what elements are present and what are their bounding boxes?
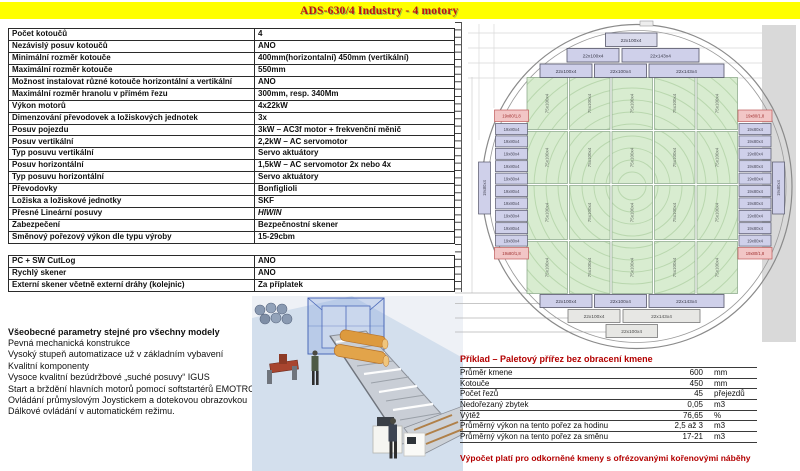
example-value: 76,65 bbox=[663, 410, 707, 421]
svg-text:19x80/1,8: 19x80/1,8 bbox=[502, 114, 521, 119]
table-row: PC + SW CutLogANO bbox=[9, 256, 455, 268]
svg-text:22x143x4: 22x143x4 bbox=[650, 53, 671, 59]
table-row: Směnový pořezový výkon dle typu výroby15… bbox=[9, 231, 455, 243]
svg-text:19x80x4: 19x80x4 bbox=[504, 226, 521, 231]
top-dimension-tag bbox=[640, 21, 653, 26]
svg-text:22x100x4: 22x100x4 bbox=[556, 299, 577, 305]
example-unit: mm bbox=[707, 378, 757, 389]
table-row: Posuv pojezdu3kW – AC3f motor + frekvenč… bbox=[9, 124, 455, 136]
ruler bbox=[459, 22, 462, 292]
spec-label: Možnost instalovat různé kotouče horizon… bbox=[9, 76, 255, 88]
example-table: Průměr kmene600mm Kotouče450mm Počet řez… bbox=[460, 367, 757, 443]
svg-text:22x100x4: 22x100x4 bbox=[583, 53, 604, 59]
spec-label: Ložiska a ložiskové jednotky bbox=[9, 196, 255, 208]
table-row: Nezávislý posuv kotoučůANO bbox=[9, 40, 455, 52]
svg-text:19x80x4: 19x80x4 bbox=[504, 139, 521, 144]
svg-text:19x80x4: 19x80x4 bbox=[504, 176, 521, 181]
table-row: Průměrný výkon na tento pořez za hodinu2… bbox=[460, 421, 757, 432]
svg-text:19x80x4: 19x80x4 bbox=[504, 164, 521, 169]
svg-text:22x100x4: 22x100x4 bbox=[621, 329, 642, 335]
svg-text:75x100x4: 75x100x4 bbox=[545, 202, 550, 222]
table-row: Ložiska a ložiskové jednotkySKF bbox=[9, 196, 455, 208]
spec-value: Za příplatek bbox=[255, 279, 455, 291]
example-unit: % bbox=[707, 410, 757, 421]
svg-text:19x80x4: 19x80x4 bbox=[747, 127, 764, 132]
cutting-diagram: 75x100x4 75x100x4 75x100x4 75x100x4 75x1… bbox=[450, 18, 800, 362]
svg-text:19x80x4: 19x80x4 bbox=[747, 152, 764, 157]
svg-text:19x80x4: 19x80x4 bbox=[482, 179, 487, 196]
spec-label: Typ posuvu vertikální bbox=[9, 148, 255, 160]
svg-text:22x100x4: 22x100x4 bbox=[621, 38, 642, 44]
svg-text:22x100x4: 22x100x4 bbox=[610, 299, 631, 305]
table-row: Externí skener včetně externí dráhy (kol… bbox=[9, 279, 455, 291]
svg-text:19x80x4: 19x80x4 bbox=[504, 238, 521, 243]
svg-text:75x100x4: 75x100x4 bbox=[587, 257, 592, 277]
spec-value: 550mm bbox=[255, 64, 455, 76]
spec-value: ANO bbox=[255, 76, 455, 88]
svg-text:75x100x4: 75x100x4 bbox=[545, 257, 550, 277]
spec-label: Minimální rozměr kotouče bbox=[9, 52, 255, 64]
example-label: Průměrný výkon na tento pořez za hodinu bbox=[460, 421, 663, 432]
example-label: Průměr kmene bbox=[460, 368, 663, 379]
table-row: Maximální rozměr hranolu v přímém řezu30… bbox=[9, 88, 455, 100]
table-row: Dimenzování převodovek a ložiskových jed… bbox=[9, 112, 455, 124]
spec-label: Zabezpečení bbox=[9, 220, 255, 232]
spec-label: Maximální rozměr kotouče bbox=[9, 64, 255, 76]
svg-text:75x100x4: 75x100x4 bbox=[545, 93, 550, 113]
svg-text:19x80x4: 19x80x4 bbox=[747, 214, 764, 219]
spec-label: Přesné Lineární posuvy bbox=[9, 208, 255, 220]
table-row: Nedořezaný zbytek0,05m3 bbox=[460, 400, 757, 411]
title-bar: ADS-630/4 Industry - 4 motory bbox=[0, 2, 800, 19]
svg-text:75x100x4: 75x100x4 bbox=[630, 147, 635, 167]
table-row: Typ posuvu vertikálníServo aktuátory bbox=[9, 148, 455, 160]
left-board-stack: 19x80/1,8 19x80x4 19x80x4 19x80x4 19x80x… bbox=[479, 110, 529, 259]
svg-text:75x100x4: 75x100x4 bbox=[630, 93, 635, 113]
spec-value: Servo aktuátory bbox=[255, 148, 455, 160]
svg-text:75x100x4: 75x100x4 bbox=[630, 257, 635, 277]
example-label: Nedořezaný zbytek bbox=[460, 400, 663, 411]
spec-sheet-page: ADS-630/4 Industry - 4 motory Počet koto… bbox=[0, 0, 800, 471]
spec-value: 15-29cbm bbox=[255, 231, 455, 243]
example-unit: přejezdů bbox=[707, 389, 757, 400]
table-row: Výtěž76,65% bbox=[460, 410, 757, 421]
spec-label: Počet kotoučů bbox=[9, 29, 255, 41]
svg-text:75x100x4: 75x100x4 bbox=[715, 93, 720, 113]
spec-value: Bezpečnostní skener bbox=[255, 220, 455, 232]
table-row: Minimální rozměr kotouče400mm(horizontal… bbox=[9, 52, 455, 64]
svg-text:75x100x4: 75x100x4 bbox=[672, 202, 677, 222]
spec-value: 400mm(horizontalní) 450mm (vertikální) bbox=[255, 52, 455, 64]
svg-text:75x100x4: 75x100x4 bbox=[672, 147, 677, 167]
top-boards: 22x100x4 22x100x4 22x143x4 22x100x4 22x1… bbox=[540, 33, 724, 78]
example-label: Výtěž bbox=[460, 410, 663, 421]
spec-label: PC + SW CutLog bbox=[9, 256, 255, 268]
svg-text:22x100x4: 22x100x4 bbox=[556, 69, 577, 75]
svg-text:75x100x4: 75x100x4 bbox=[715, 202, 720, 222]
spec-label: Posuv pojezdu bbox=[9, 124, 255, 136]
spec-value: 3kW – AC3f motor + frekvenční měnič bbox=[255, 124, 455, 136]
example-value: 45 bbox=[663, 389, 707, 400]
svg-text:75x100x4: 75x100x4 bbox=[587, 147, 592, 167]
spec-label: Převodovky bbox=[9, 184, 255, 196]
spec-value: Bonfiglioli bbox=[255, 184, 455, 196]
example-section: Příklad – Paletový přířez bez obracení k… bbox=[460, 353, 760, 463]
table-row: Průměrný výkon na tento pořez za směnu17… bbox=[460, 432, 757, 443]
table-row: Přesné Lineární posuvyHIWIN bbox=[9, 208, 455, 220]
svg-text:19x80x4: 19x80x4 bbox=[747, 238, 764, 243]
svg-text:22x143x4: 22x143x4 bbox=[676, 299, 697, 305]
svg-text:75x100x4: 75x100x4 bbox=[545, 147, 550, 167]
svg-text:19x80/1,8: 19x80/1,8 bbox=[502, 251, 521, 256]
spec-label: Typ posuvu horizontální bbox=[9, 172, 255, 184]
svg-text:19x80/1,8: 19x80/1,8 bbox=[746, 114, 765, 119]
example-value: 450 bbox=[663, 378, 707, 389]
spec-label: Směnový pořezový výkon dle typu výroby bbox=[9, 231, 255, 243]
example-value: 0,05 bbox=[663, 400, 707, 411]
svg-text:19x80x4: 19x80x4 bbox=[747, 189, 764, 194]
spec-label: Externí skener včetně externí dráhy (kol… bbox=[9, 279, 255, 291]
svg-text:19x80x4: 19x80x4 bbox=[747, 139, 764, 144]
svg-text:19x80x4: 19x80x4 bbox=[776, 179, 781, 196]
spec-value: 4 bbox=[255, 29, 455, 41]
svg-text:75x100x4: 75x100x4 bbox=[630, 202, 635, 222]
page-title: ADS-630/4 Industry - 4 motory bbox=[300, 5, 459, 17]
spec-label: Výkon motorů bbox=[9, 100, 255, 112]
svg-text:22x100x4: 22x100x4 bbox=[584, 314, 605, 320]
svg-text:75x100x4: 75x100x4 bbox=[672, 93, 677, 113]
example-value: 17-21 bbox=[663, 432, 707, 443]
spec-value: 1,5kW – AC servomotor 2x nebo 4x bbox=[255, 160, 455, 172]
center-blocks: 75x100x4 75x100x4 75x100x4 75x100x4 75x1… bbox=[486, 40, 778, 332]
svg-text:19x80x4: 19x80x4 bbox=[504, 152, 521, 157]
spec-value: ANO bbox=[255, 40, 455, 52]
example-title: Příklad – Paletový přířez bez obracení k… bbox=[460, 353, 760, 365]
svg-text:22x100x4: 22x100x4 bbox=[610, 69, 631, 75]
spec-value: Servo aktuátory bbox=[255, 172, 455, 184]
spec-label: Dimenzování převodovek a ložiskových jed… bbox=[9, 112, 255, 124]
svg-text:22x143x4: 22x143x4 bbox=[651, 314, 672, 320]
spec-value: 3x bbox=[255, 112, 455, 124]
table-row: Rychlý skenerANO bbox=[9, 267, 455, 279]
example-label: Průměrný výkon na tento pořez za směnu bbox=[460, 432, 663, 443]
svg-text:19x80x4: 19x80x4 bbox=[747, 176, 764, 181]
spec-value: 2,2kW – AC servomotor bbox=[255, 136, 455, 148]
table-row: Maximální rozměr kotouče550mm bbox=[9, 64, 455, 76]
svg-text:19x80x4: 19x80x4 bbox=[504, 189, 521, 194]
svg-text:19x80x4: 19x80x4 bbox=[504, 214, 521, 219]
spec-value: ANO bbox=[255, 267, 455, 279]
svg-text:75x100x4: 75x100x4 bbox=[587, 93, 592, 113]
table-row: Možnost instalovat různé kotouče horizon… bbox=[9, 76, 455, 88]
svg-text:19x80x4: 19x80x4 bbox=[747, 201, 764, 206]
table-row: Kotouče450mm bbox=[460, 378, 757, 389]
svg-text:19x80x4: 19x80x4 bbox=[504, 127, 521, 132]
svg-text:75x100x4: 75x100x4 bbox=[672, 257, 677, 277]
spec-value: SKF bbox=[255, 196, 455, 208]
example-value: 2,5 až 3 bbox=[663, 421, 707, 432]
svg-text:75x100x4: 75x100x4 bbox=[715, 257, 720, 277]
example-label: Kotouče bbox=[460, 378, 663, 389]
spec-label: Posuv vertikální bbox=[9, 136, 255, 148]
svg-text:19x80/1,8: 19x80/1,8 bbox=[746, 251, 765, 256]
table-row: Průměr kmene600mm bbox=[460, 368, 757, 379]
spec-table: Počet kotoučů4 Nezávislý posuv kotoučůAN… bbox=[8, 28, 455, 244]
example-unit: m3 bbox=[707, 421, 757, 432]
machine-illustration bbox=[252, 296, 463, 471]
table-row: Počet kotoučů4 bbox=[9, 29, 455, 41]
spec-value: 4x22kW bbox=[255, 100, 455, 112]
spec-label: Posuv horizontální bbox=[9, 160, 255, 172]
svg-text:75x100x4: 75x100x4 bbox=[715, 147, 720, 167]
example-unit: mm bbox=[707, 368, 757, 379]
example-label: Počet řezů bbox=[460, 389, 663, 400]
table-row: Typ posuvu horizontálníServo aktuátory bbox=[9, 172, 455, 184]
svg-text:19x80x4: 19x80x4 bbox=[747, 164, 764, 169]
table-row: PřevodovkyBonfiglioli bbox=[9, 184, 455, 196]
example-unit: m3 bbox=[707, 400, 757, 411]
spec-value: 300mm, resp. 340Mm bbox=[255, 88, 455, 100]
spec-label: Maximální rozměr hranolu v přímém řezu bbox=[9, 88, 255, 100]
table-row: Posuv vertikální2,2kW – AC servomotor bbox=[9, 136, 455, 148]
spec-value: HIWIN bbox=[255, 208, 455, 220]
example-value: 600 bbox=[663, 368, 707, 379]
options-table: PC + SW CutLogANO Rychlý skenerANO Exter… bbox=[8, 255, 455, 292]
spec-label: Rychlý skener bbox=[9, 267, 255, 279]
svg-text:75x100x4: 75x100x4 bbox=[587, 202, 592, 222]
table-row: Počet řezů45přejezdů bbox=[460, 389, 757, 400]
svg-text:19x80x4: 19x80x4 bbox=[504, 201, 521, 206]
svg-text:22x143x4: 22x143x4 bbox=[676, 69, 697, 75]
spec-value: ANO bbox=[255, 256, 455, 268]
example-unit: m3 bbox=[707, 432, 757, 443]
table-row: ZabezpečeníBezpečnostní skener bbox=[9, 220, 455, 232]
svg-text:19x80x4: 19x80x4 bbox=[747, 226, 764, 231]
example-footer: Výpočet platí pro odkorněné kmeny s ofré… bbox=[460, 453, 760, 463]
spec-label: Nezávislý posuv kotoučů bbox=[9, 40, 255, 52]
table-row: Výkon motorů4x22kW bbox=[9, 100, 455, 112]
table-row: Posuv horizontální1,5kW – AC servomotor … bbox=[9, 160, 455, 172]
